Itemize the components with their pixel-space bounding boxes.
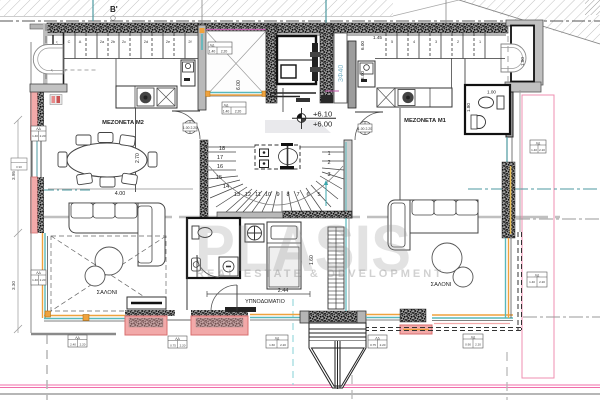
svg-text:3: 3 [435, 40, 437, 44]
svg-text:1.80: 1.80 [466, 103, 471, 112]
svg-text:+6.10: +6.10 [313, 110, 332, 119]
svg-text:2.20: 2.20 [40, 134, 46, 138]
svg-text:13: 13 [234, 192, 240, 198]
svg-text:12: 12 [245, 192, 251, 198]
svg-text:A: A [79, 40, 82, 44]
svg-text:ς: ς [56, 40, 58, 44]
svg-text:ς: ς [51, 68, 53, 72]
svg-text:1: 1 [479, 40, 481, 44]
svg-text:+6.00: +6.00 [313, 120, 332, 129]
svg-text:2d: 2d [144, 40, 148, 44]
svg-text:0.75: 0.75 [170, 344, 176, 348]
svg-text:ΣΑΛΟΝΙ: ΣΑΛΟΝΙ [431, 282, 452, 288]
svg-text:ΥΠΝΟΔΩΜΑΤΙΟ: ΥΠΝΟΔΩΜΑΤΙΟ [245, 299, 285, 305]
svg-text:1.40: 1.40 [531, 148, 537, 152]
svg-text:6: 6 [306, 192, 309, 198]
svg-text:6.00: 6.00 [360, 41, 365, 50]
svg-text:1.40: 1.40 [529, 280, 535, 284]
svg-text:ΛΔ: ΛΔ [175, 337, 180, 341]
svg-text:15: 15 [216, 175, 222, 181]
svg-text:5: 5 [317, 192, 320, 198]
svg-text:1.00 2.20: 1.00 2.20 [183, 126, 197, 130]
svg-text:0.90: 0.90 [465, 343, 471, 347]
svg-text:3Φ40: 3Φ40 [338, 65, 345, 82]
svg-text:6.00: 6.00 [236, 80, 242, 90]
svg-text:ΛΔ: ΛΔ [375, 336, 380, 340]
svg-text:ΛΔ: ΛΔ [536, 141, 541, 145]
svg-text:8.00: 8.00 [360, 71, 365, 80]
svg-text:1.00: 1.00 [487, 90, 496, 95]
svg-text:ΛΔ: ΛΔ [75, 336, 80, 340]
svg-text:1.40: 1.40 [32, 134, 38, 138]
svg-text:1.40: 1.40 [209, 50, 216, 54]
svg-text:2.70: 2.70 [135, 153, 141, 163]
svg-text:5: 5 [391, 40, 393, 44]
svg-text:1.80: 1.80 [520, 57, 525, 66]
svg-text:ΣΑΛΟΝΙ: ΣΑΛΟΝΙ [97, 290, 118, 296]
svg-text:ΛΔ: ΛΔ [471, 335, 476, 339]
svg-text:2c: 2c [122, 40, 126, 44]
svg-text:2.40: 2.40 [70, 343, 76, 347]
svg-text:ΛΔ: ΛΔ [36, 127, 41, 131]
svg-text:ΜΕΖΟΝΕΤΑ Μ1: ΜΕΖΟΝΕΤΑ Μ1 [404, 118, 447, 124]
svg-text:3.95: 3.95 [11, 171, 16, 180]
svg-text:3.30: 3.30 [11, 281, 16, 290]
svg-text:14: 14 [223, 184, 229, 190]
svg-text:11: 11 [255, 192, 261, 198]
svg-text:0.90: 0.90 [16, 165, 22, 169]
svg-text:2.20: 2.20 [40, 278, 46, 282]
svg-text:ΛΔ: ΛΔ [275, 336, 280, 340]
svg-text:ΛΔ: ΛΔ [210, 44, 215, 48]
svg-text:10: 10 [265, 192, 271, 198]
svg-text:0.75: 0.75 [370, 343, 376, 347]
svg-text:1.60: 1.60 [269, 343, 275, 347]
svg-text:2.20: 2.20 [280, 343, 286, 347]
svg-text:REAL ESTATE & DEVELOPMENT: REAL ESTATE & DEVELOPMENT [196, 268, 444, 280]
svg-text:Β': Β' [110, 5, 118, 14]
svg-text:C: C [68, 40, 71, 44]
svg-text:2.20: 2.20 [539, 280, 545, 284]
svg-text:2b: 2b [111, 40, 115, 44]
svg-text:ΛΔ: ΛΔ [224, 104, 229, 108]
svg-text:4: 4 [413, 40, 415, 44]
svg-text:1.40: 1.40 [32, 278, 38, 282]
svg-text:1.00 2.20: 1.00 2.20 [358, 127, 372, 131]
svg-text:4.00: 4.00 [115, 191, 126, 197]
svg-text:ΛΔ: ΛΔ [36, 271, 41, 275]
svg-text:2.20: 2.20 [475, 343, 481, 347]
svg-text:18: 18 [219, 146, 225, 152]
svg-text:2.20: 2.20 [235, 110, 242, 114]
svg-text:8: 8 [286, 192, 289, 198]
svg-text:1.40: 1.40 [223, 110, 230, 114]
svg-text:1.45: 1.45 [373, 35, 382, 40]
svg-text:1: 1 [327, 151, 330, 157]
svg-text:2.20: 2.20 [380, 343, 386, 347]
svg-text:17: 17 [217, 155, 223, 161]
svg-text:ΛΔ: ΛΔ [535, 273, 540, 277]
svg-text:2.20: 2.20 [80, 343, 86, 347]
svg-text:2e: 2e [166, 40, 170, 44]
svg-text:2.20: 2.20 [539, 148, 545, 152]
svg-text:2.20: 2.20 [221, 50, 228, 54]
svg-text:2: 2 [457, 40, 459, 44]
svg-text:9: 9 [276, 192, 279, 198]
svg-text:2: 2 [327, 160, 330, 166]
svg-text:2.20: 2.20 [180, 344, 186, 348]
svg-text:3: 3 [327, 172, 330, 178]
svg-text:2.44: 2.44 [278, 288, 289, 294]
svg-text:16: 16 [217, 164, 223, 170]
svg-text:ΜΕΖΟΝΕΤΑ Μ2: ΜΕΖΟΝΕΤΑ Μ2 [102, 120, 144, 126]
svg-text:7: 7 [296, 192, 299, 198]
